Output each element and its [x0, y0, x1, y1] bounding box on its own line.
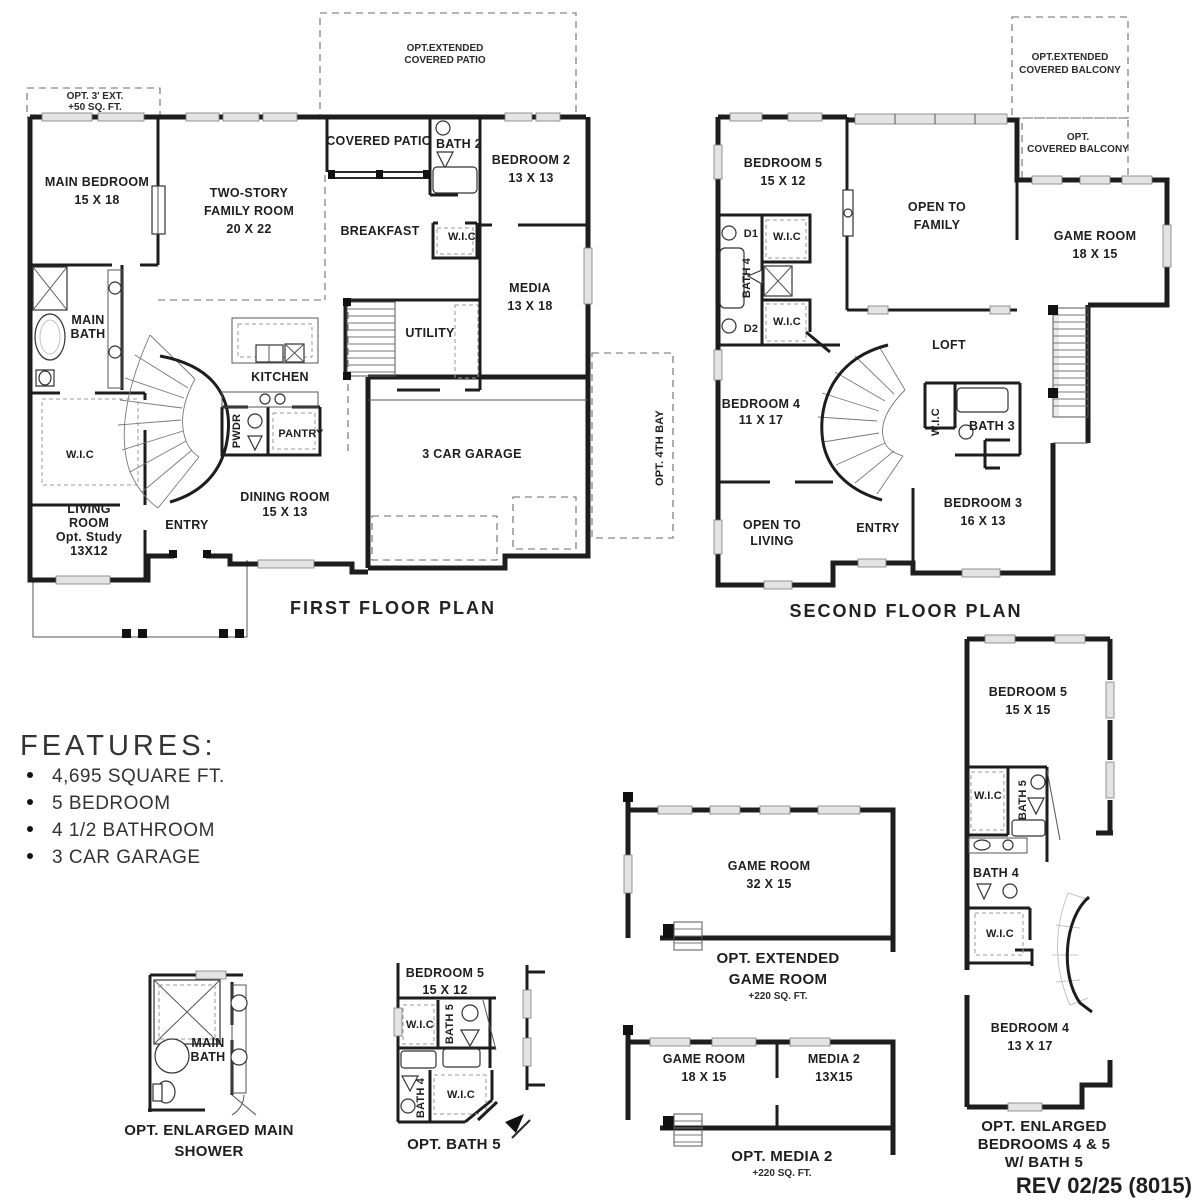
label-opt-ext-balcony-1: OPT.EXTENDED — [1032, 52, 1109, 63]
first-floor-straight-stair — [343, 298, 395, 380]
label-open-living-1: OPEN TO — [743, 518, 801, 532]
label-open-family-2: FAMILY — [914, 218, 961, 232]
second-floor-curved-stair — [818, 345, 905, 500]
label-family-1: TWO-STORY — [210, 186, 289, 200]
label-entry-2f: ENTRY — [856, 521, 900, 535]
label-opt-bath5-wic-bottom: W.I.C — [447, 1089, 475, 1101]
label-living-1: LIVING — [67, 502, 110, 516]
label-living-3: Opt. Study — [56, 530, 122, 544]
label-bath4-2f: BATH 4 — [741, 257, 753, 298]
label-bedroom3-dim: 16 X 13 — [960, 514, 1005, 528]
opt-ext-game-caption-1: OPT. EXTENDED — [716, 950, 839, 967]
label-main-bath-2: BATH — [71, 327, 106, 341]
opt-enlarged-caption-1: OPT. ENLARGED — [981, 1118, 1107, 1135]
family-room-media-niche — [152, 186, 165, 234]
label-breakfast: BREAKFAST — [340, 224, 419, 238]
label-media-dim: 13 X 18 — [507, 299, 552, 313]
opt-enlarged-fixtures — [969, 770, 1092, 1012]
label-dining-dim: 15 X 13 — [262, 505, 307, 519]
label-opt-bath5-bed5: BEDROOM 5 — [406, 966, 484, 980]
label-bedroom4-2f-dim: 11 X 17 — [739, 413, 784, 427]
label-opt-bath5-bath5: BATH 5 — [444, 1004, 456, 1044]
label-bedroom5-2f-dim: 15 X 12 — [760, 174, 805, 188]
label-living-2: ROOM — [69, 516, 109, 530]
opt-media2-walls — [623, 1025, 893, 1155]
floor-plan-sheet: OPT. 3' EXT. +50 SQ. FT. OPT.EXTENDED CO… — [0, 0, 1200, 1200]
label-opt-bath5-wic-top: W.I.C — [406, 1019, 434, 1031]
label-main-bedroom-dim: 15 X 18 — [74, 193, 119, 207]
label-bedroom3: BEDROOM 3 — [944, 496, 1022, 510]
revision-label: REV 02/25 (8015) — [1016, 1173, 1192, 1198]
opt-main-shower-caption-2: SHOWER — [174, 1143, 243, 1160]
label-media: MEDIA — [509, 281, 551, 295]
opt-main-shower-caption-1: OPT. ENLARGED MAIN — [124, 1122, 294, 1139]
label-wic-2f-top: W.I.C — [773, 231, 801, 243]
first-floor-plan: OPT. 3' EXT. +50 SQ. FT. OPT.EXTENDED CO… — [27, 13, 673, 638]
label-bed2-wic: W.I.C — [448, 231, 476, 243]
garage-doors — [372, 497, 576, 560]
label-opt-balcony-1: OPT. — [1067, 132, 1089, 143]
label-opt-patio-2: COVERED PATIO — [404, 55, 486, 66]
label-family-dim: 20 X 22 — [226, 222, 271, 236]
opt-bath5-caption: OPT. BATH 5 — [407, 1136, 501, 1153]
label-enl-bath5: BATH 5 — [1017, 780, 1029, 820]
label-open-family-1: OPEN TO — [908, 200, 966, 214]
label-enl-bedroom4-dim: 13 X 17 — [1007, 1039, 1052, 1053]
label-enl-bedroom4: BEDROOM 4 — [991, 1021, 1069, 1035]
opt-enlarged-bedrooms-diagram: BEDROOM 5 15 X 15 W.I.C BATH 5 BATH 4 W.… — [967, 635, 1114, 1171]
main-wic-shelves — [42, 399, 138, 485]
label-main-bedroom: MAIN BEDROOM — [45, 175, 149, 189]
label-entry-1f: ENTRY — [165, 518, 209, 532]
label-ext-game-room: GAME ROOM — [728, 859, 811, 873]
bath2-fixtures — [433, 121, 477, 193]
label-covered-patio: COVERED PATIO — [326, 134, 432, 148]
feature-item: 3 CAR GARAGE — [52, 847, 201, 868]
feature-item: 5 BEDROOM — [52, 793, 171, 814]
label-living-4: 13X12 — [70, 544, 108, 558]
opt-media2-caption-1: OPT. MEDIA 2 — [731, 1148, 832, 1165]
label-bath3: BATH 3 — [969, 419, 1015, 433]
floor-plan-drawing: OPT. 3' EXT. +50 SQ. FT. OPT.EXTENDED CO… — [0, 0, 1200, 1200]
label-opt-shower-main-1: MAIN — [191, 1036, 224, 1050]
opt-extended-game-stair — [663, 922, 702, 950]
label-enl-wic-bottom: W.I.C — [986, 928, 1014, 940]
label-d2: D2 — [744, 323, 758, 335]
label-bath2: BATH 2 — [436, 137, 482, 151]
label-bedroom4-2f: BEDROOM 4 — [722, 397, 800, 411]
opt-main-shower-diagram: MAIN BATH OPT. ENLARGED MAIN SHOWER — [124, 971, 294, 1160]
covered-patio-screen — [328, 170, 430, 179]
label-d1: D1 — [744, 228, 758, 240]
label-loft: LOFT — [932, 338, 966, 352]
label-main-wic: W.I.C — [66, 449, 94, 461]
opt-media2-caption-2: +220 SQ. FT. — [752, 1168, 811, 1179]
first-floor-title: FIRST FLOOR PLAN — [290, 598, 496, 618]
label-bedroom5-2f: BEDROOM 5 — [744, 156, 822, 170]
first-floor-curved-stair — [118, 335, 228, 508]
opt-enlarged-caption-3: W/ BATH 5 — [1005, 1154, 1083, 1171]
feature-item: 4,695 SQUARE FT. — [52, 766, 225, 787]
label-enl-bath4: BATH 4 — [973, 866, 1019, 880]
label-opt-3ext-2: +50 SQ. FT. — [68, 102, 122, 113]
label-opt-4th-bay: OPT. 4TH BAY — [654, 410, 666, 486]
utility-appliances — [455, 305, 478, 378]
label-game-room-2f: GAME ROOM — [1054, 229, 1137, 243]
label-wic-2f-bottom: W.I.C — [773, 316, 801, 328]
label-enl-bedroom5: BEDROOM 5 — [989, 685, 1067, 699]
opt-media2-diagram: GAME ROOM 18 X 15 MEDIA 2 13X15 OPT. MED… — [623, 1025, 893, 1179]
label-opt-shower-main-2: BATH — [191, 1050, 226, 1064]
label-enl-bedroom5-dim: 15 X 15 — [1005, 703, 1050, 717]
opt-ext-game-caption-3: +220 SQ. FT. — [748, 991, 807, 1002]
second-floor-optional-dashed — [1012, 17, 1128, 180]
label-opt-patio-1: OPT.EXTENDED — [407, 43, 484, 54]
second-floor-plan: OPT.EXTENDED COVERED BALCONY OPT. COVERE… — [714, 17, 1171, 621]
label-media2-game-dim: 18 X 15 — [681, 1070, 726, 1084]
features-heading: FEATURES: — [20, 730, 217, 762]
label-media2: MEDIA 2 — [808, 1052, 860, 1066]
opt-extended-game-diagram: GAME ROOM 32 X 15 OPT. EXTENDED GAME ROO… — [623, 792, 893, 1002]
label-family-2: FAMILY ROOM — [204, 204, 294, 218]
label-opt-bath5-bath4: BATH 4 — [415, 1077, 427, 1118]
label-kitchen: KITCHEN — [251, 370, 309, 384]
first-floor-optional-dashed — [27, 13, 673, 538]
label-pantry: PANTRY — [278, 428, 324, 440]
label-main-bath-1: MAIN — [71, 313, 104, 327]
label-media2-dim: 13X15 — [815, 1070, 853, 1084]
second-floor-title: SECOND FLOOR PLAN — [789, 601, 1022, 621]
label-opt-balcony-2: COVERED BALCONY — [1027, 144, 1129, 155]
label-wic-bed3: W.I.C — [930, 408, 942, 436]
features-list: FEATURES: 4,695 SQUARE FT. 5 BEDROOM 4 1… — [20, 730, 225, 868]
label-pwdr: PWDR — [231, 414, 243, 448]
label-garage: 3 CAR GARAGE — [422, 447, 521, 461]
label-opt-bath5-bed5-dim: 15 X 12 — [422, 983, 467, 997]
label-enl-wic-top: W.I.C — [974, 790, 1002, 802]
feature-item: 4 1/2 BATHROOM — [52, 820, 215, 841]
second-floor-straight-stair — [1048, 305, 1088, 417]
label-utility: UTILITY — [405, 326, 455, 340]
opt-enlarged-caption-2: BEDROOMS 4 & 5 — [978, 1136, 1111, 1153]
label-opt-ext-balcony-2: COVERED BALCONY — [1019, 65, 1121, 76]
label-dining: DINING ROOM — [240, 490, 329, 504]
label-bedroom2-dim: 13 X 13 — [508, 171, 553, 185]
opt-ext-game-caption-2: GAME ROOM — [729, 971, 828, 988]
label-opt-3ext-1: OPT. 3' EXT. — [67, 91, 124, 102]
label-bedroom2: BEDROOM 2 — [492, 153, 570, 167]
label-open-living-2: LIVING — [750, 534, 793, 548]
front-porch — [33, 560, 247, 638]
opt-bath5-diagram: BEDROOM 5 15 X 12 W.I.C BATH 5 BATH 4 W.… — [394, 963, 545, 1153]
label-game-room-2f-dim: 18 X 15 — [1072, 247, 1117, 261]
label-ext-game-room-dim: 32 X 15 — [746, 877, 791, 891]
label-media2-game: GAME ROOM — [663, 1052, 746, 1066]
kitchen-fixtures — [222, 318, 318, 407]
